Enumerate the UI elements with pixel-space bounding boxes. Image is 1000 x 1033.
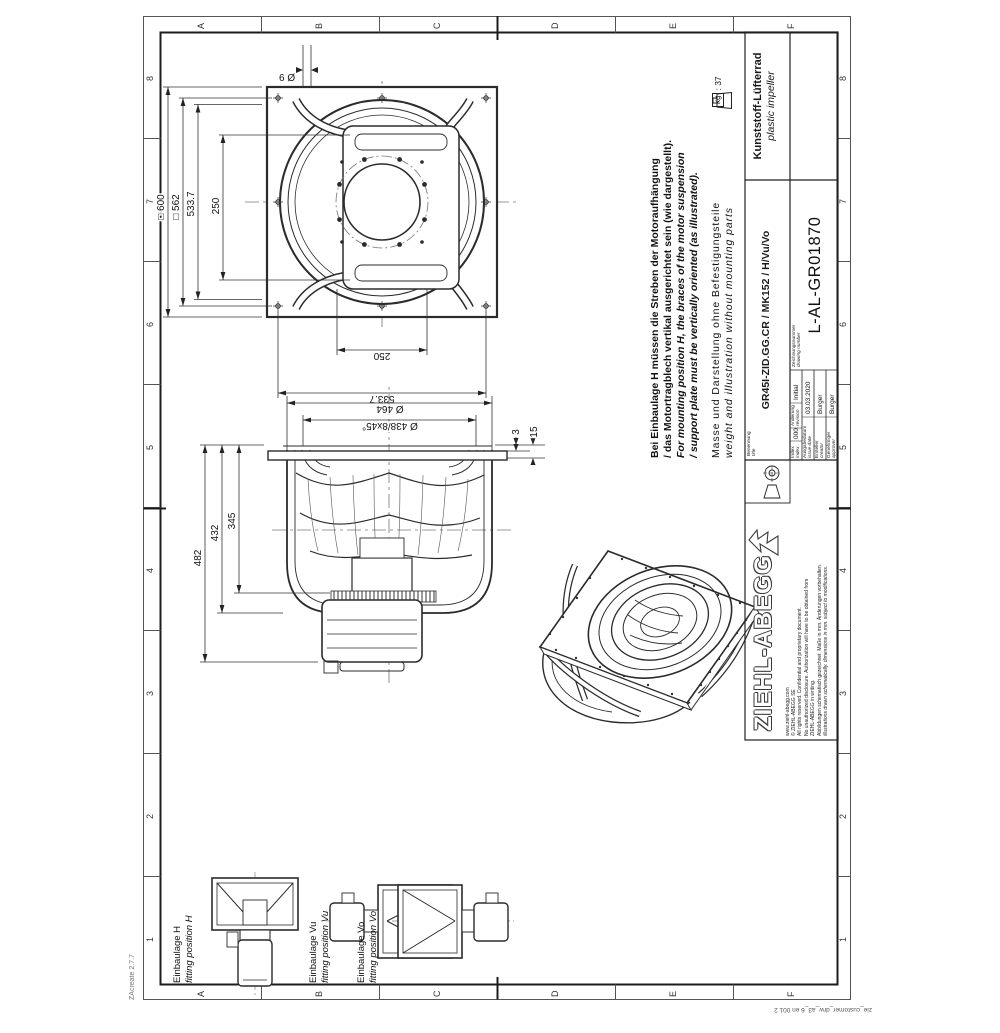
- zone-label: 3: [838, 691, 848, 696]
- motor: [322, 600, 422, 673]
- part-code: GR45I-ZID.GG.CR / MK152 / H/Vu/Vo: [760, 180, 772, 460]
- zone-label: 5: [838, 445, 848, 450]
- dim-432: 432: [210, 524, 221, 541]
- zone-label: 2: [145, 814, 155, 819]
- dim-438: Ø 438/8x45°: [362, 420, 418, 431]
- note-en-1: For mounting position H, the braces of t…: [675, 140, 688, 458]
- approver-value: Burger: [829, 394, 836, 414]
- zone-label: 8: [145, 76, 155, 81]
- dim-5337-top: 533.7: [186, 191, 197, 216]
- issue-date-value: 03.03.2020: [805, 381, 812, 414]
- copyright-line: ZIEHL-ABEGG in writing.: [810, 579, 816, 736]
- section-view: 482 432 345 Ø 464 Ø 438/8x45° 3 15: [193, 383, 545, 683]
- form-id: zie_customer_drw_a3_6 en 001 2: [774, 1006, 872, 1013]
- zone-label: E: [668, 991, 678, 997]
- zone-label: A: [196, 991, 206, 997]
- zone-label: 6: [145, 322, 155, 327]
- fitting-vo-de: Einbaulage Vo: [356, 911, 368, 983]
- dim-250-top: 250: [211, 197, 222, 214]
- dim-482: 482: [193, 549, 204, 566]
- zone-label: F: [786, 24, 796, 30]
- zone-label: 8: [838, 76, 848, 81]
- zone-label: C: [432, 991, 442, 998]
- note-de-2: / das Motortragblech vertikal ausgericht…: [662, 140, 675, 458]
- drawing-page: □ 600 □ 562 533.7 250 533.7 250: [0, 0, 1000, 1033]
- index-value: 000: [793, 428, 800, 439]
- dim-15: 15: [529, 426, 540, 438]
- zone-label: 2: [838, 814, 848, 819]
- dim-3: 3: [511, 429, 522, 435]
- schematic-note-en: illustrations drawn schematically. dimen…: [823, 564, 829, 736]
- zone-label: 3: [145, 691, 155, 696]
- fitting-vo-en: fitting position Vo: [368, 911, 380, 983]
- creator-label: Ersteller creator: [815, 440, 825, 458]
- weight-value: 37: [713, 76, 723, 85]
- motor-support-plate: [336, 126, 459, 289]
- zone-label: 7: [145, 199, 155, 204]
- approver-label: Genehmiger approver: [827, 432, 837, 458]
- index-label: Index index: [791, 446, 801, 458]
- fitting-position-h-icon: [212, 872, 298, 996]
- part-name-en: plastic impeller: [765, 32, 778, 180]
- zone-label: A: [196, 23, 206, 29]
- fitting-position-vo-label: Einbaulage Vo fitting position Vo: [356, 911, 380, 983]
- dim-hole-dia: 6 Ø: [279, 73, 295, 84]
- mounting-notes: Bei Einbaulage H müssen die Streben der …: [649, 140, 736, 458]
- weight-box: kg : 37: [712, 76, 724, 109]
- fitting-position-vo-icon: [392, 885, 514, 958]
- dim-250-left: 250: [373, 350, 390, 361]
- drawing-number-label: Zeichnungsnummer drawing number: [792, 325, 802, 367]
- ziehl-abegg-bird-icon: [749, 530, 778, 555]
- note-mass-de: Masse und Darstellung ohne Befestigungst…: [710, 140, 723, 458]
- copyright-block: www.ziehl-abegg.com © ZIEHL-ABEGG SE All…: [785, 579, 816, 736]
- dim-5337-left: 533.7: [369, 393, 394, 404]
- front-view: □ 600 □ 562 533.7 250 533.7 250: [156, 45, 519, 404]
- zone-label: F: [786, 992, 796, 998]
- note-mass-en: weight and illustration without mounting…: [723, 140, 736, 458]
- drawing-number: L-AL-GR01870: [806, 180, 825, 370]
- zone-label: 1: [145, 937, 155, 942]
- isometric-view: [540, 546, 759, 723]
- zone-label: 7: [838, 199, 848, 204]
- zone-label: 5: [145, 445, 155, 450]
- zone-label: 4: [145, 568, 155, 573]
- projection-symbol: [763, 464, 781, 498]
- fitting-vu-en: fitting position Vu: [320, 911, 332, 983]
- issue-date-label: Ausgabedatum issue date: [803, 426, 813, 458]
- benennung-label: Benennung title: [747, 431, 757, 456]
- note-de-1: Bei Einbaulage H müssen die Streben der …: [649, 140, 662, 458]
- drawing-canvas: □ 600 □ 562 533.7 250 533.7 250: [0, 0, 1000, 1033]
- fitting-h-de: Einbaulage H: [172, 915, 184, 983]
- zone-label: 1: [838, 937, 848, 942]
- zone-label: D: [550, 23, 560, 30]
- dim-sq562: □ 562: [171, 194, 182, 220]
- dim-sq600: □ 600: [156, 194, 167, 220]
- dim-345: 345: [227, 512, 238, 529]
- revision-value: Initial: [793, 385, 800, 400]
- copyright-line: No unauthorized disclosure. Authorizatio…: [804, 579, 810, 736]
- fitting-position-h-label: Einbaulage H fitting position H: [172, 915, 196, 983]
- zacreate-version: ZAcreate 2.7.7: [129, 954, 136, 1000]
- schematic-note: Abbildungen schematisch gezeichnet. Maße…: [817, 564, 829, 736]
- weight-icon: [712, 92, 733, 109]
- part-name: Kunststoff-Lüfterrad plastic impeller: [752, 32, 778, 180]
- zone-label: 4: [838, 568, 848, 573]
- zone-label: E: [668, 23, 678, 29]
- ziehl-abegg-logo: ZIEHL-ABEGG: [750, 555, 778, 731]
- fitting-vu-de: Einbaulage Vu: [308, 911, 320, 983]
- zone-label: B: [314, 23, 324, 29]
- zone-label: D: [550, 991, 560, 998]
- fitting-position-vu-label: Einbaulage Vu fitting position Vu: [308, 911, 332, 983]
- creator-value: Burger: [817, 394, 824, 414]
- note-en-2: / support plate must be vertically orien…: [688, 140, 701, 458]
- zone-label: 6: [838, 322, 848, 327]
- zone-label: B: [314, 991, 324, 997]
- dim-464: Ø 464: [376, 403, 404, 414]
- weight-sep: :: [713, 88, 723, 90]
- drawing-sheet: □ 600 □ 562 533.7 250 533.7 250: [0, 0, 1000, 1033]
- fitting-h-en: fitting position H: [184, 915, 196, 983]
- part-name-de: Kunststoff-Lüfterrad: [752, 32, 765, 180]
- zone-label: C: [432, 23, 442, 30]
- revision-label: Änderung revision: [791, 405, 801, 426]
